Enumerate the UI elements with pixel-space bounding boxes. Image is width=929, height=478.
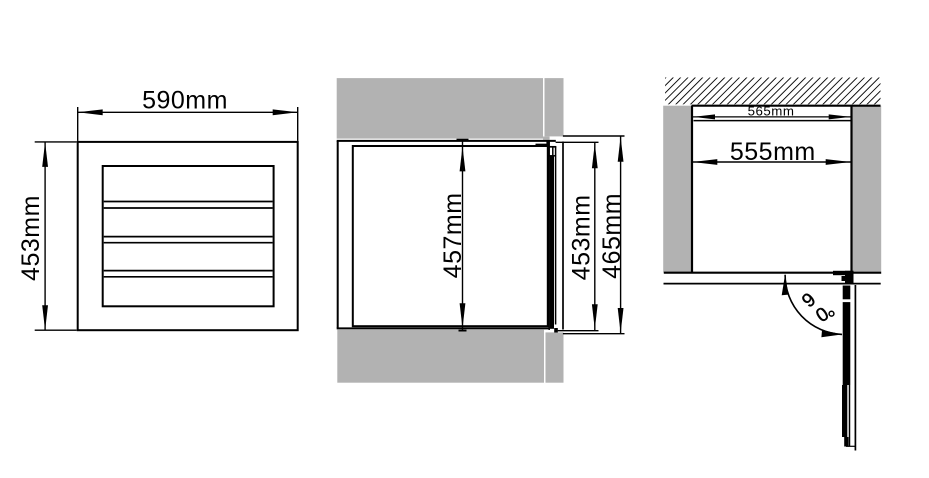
svg-text:590mm: 590mm (142, 87, 228, 115)
svg-text:453mm: 453mm (17, 195, 45, 281)
svg-text:457mm: 457mm (439, 192, 467, 278)
svg-text:465mm: 465mm (598, 193, 626, 279)
svg-text:555mm: 555mm (730, 138, 816, 166)
svg-text:453mm: 453mm (568, 194, 596, 280)
svg-text:565mm: 565mm (748, 104, 795, 119)
